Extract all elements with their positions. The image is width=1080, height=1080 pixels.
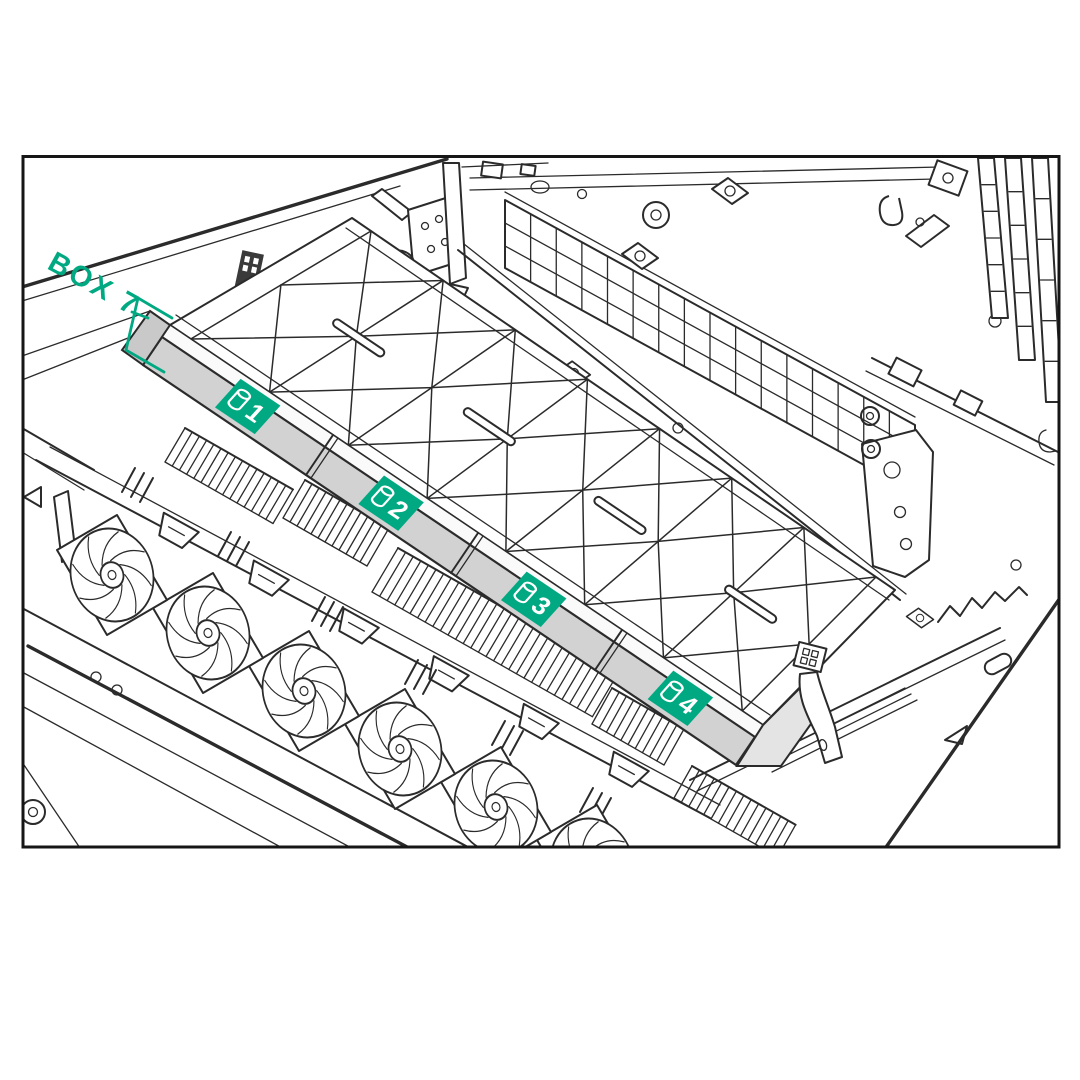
crop-mask-right (1060, 0, 1080, 1080)
crop-mask-top (0, 0, 1080, 156)
server-box7-diagram: 1 2 3 4 (0, 0, 1080, 1080)
cable-hook (880, 196, 903, 225)
rear-clip (520, 164, 535, 176)
crop-mask-bottom (0, 848, 1080, 1080)
riser-bracket (862, 430, 933, 577)
rear-clip (481, 162, 503, 179)
crop-mask-left (0, 0, 22, 1080)
figure: 1 2 3 4 (0, 0, 1080, 1080)
